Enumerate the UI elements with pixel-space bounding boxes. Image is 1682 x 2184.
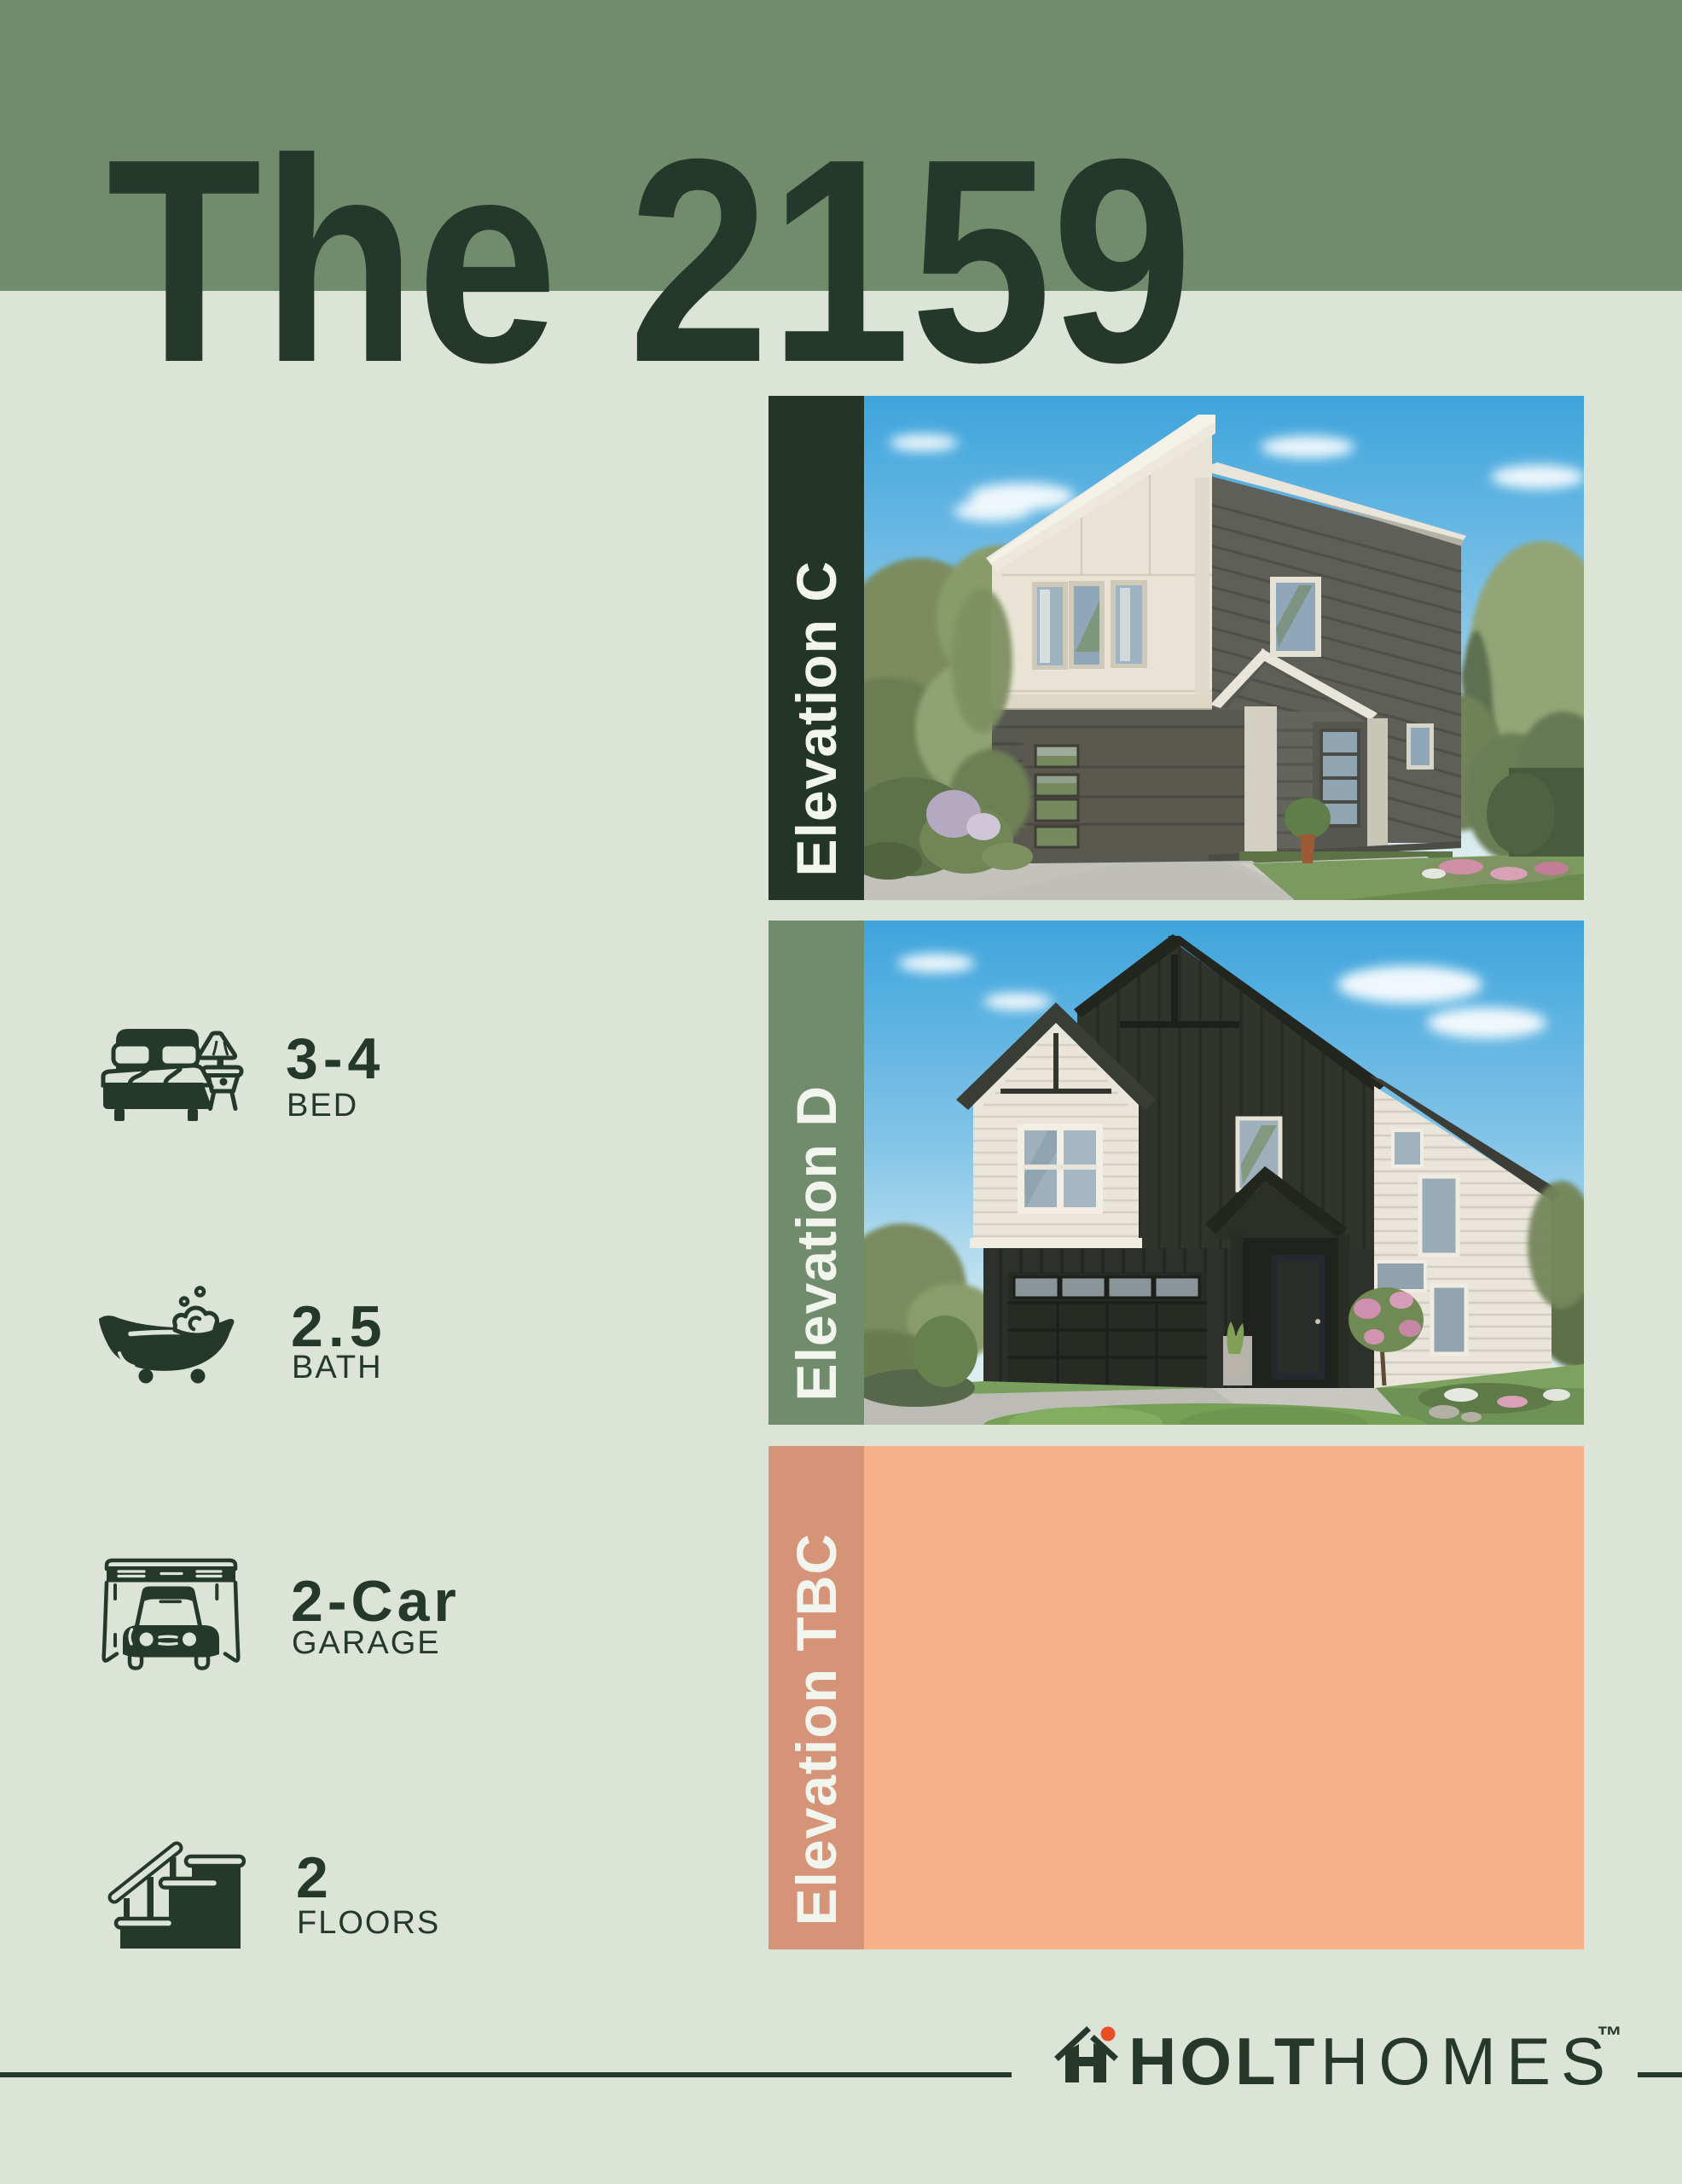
svg-text:™: ™ [1597, 2022, 1622, 2050]
svg-text:HOLT: HOLT [1128, 2024, 1319, 2099]
svg-text:HOMES: HOMES [1320, 2024, 1615, 2099]
